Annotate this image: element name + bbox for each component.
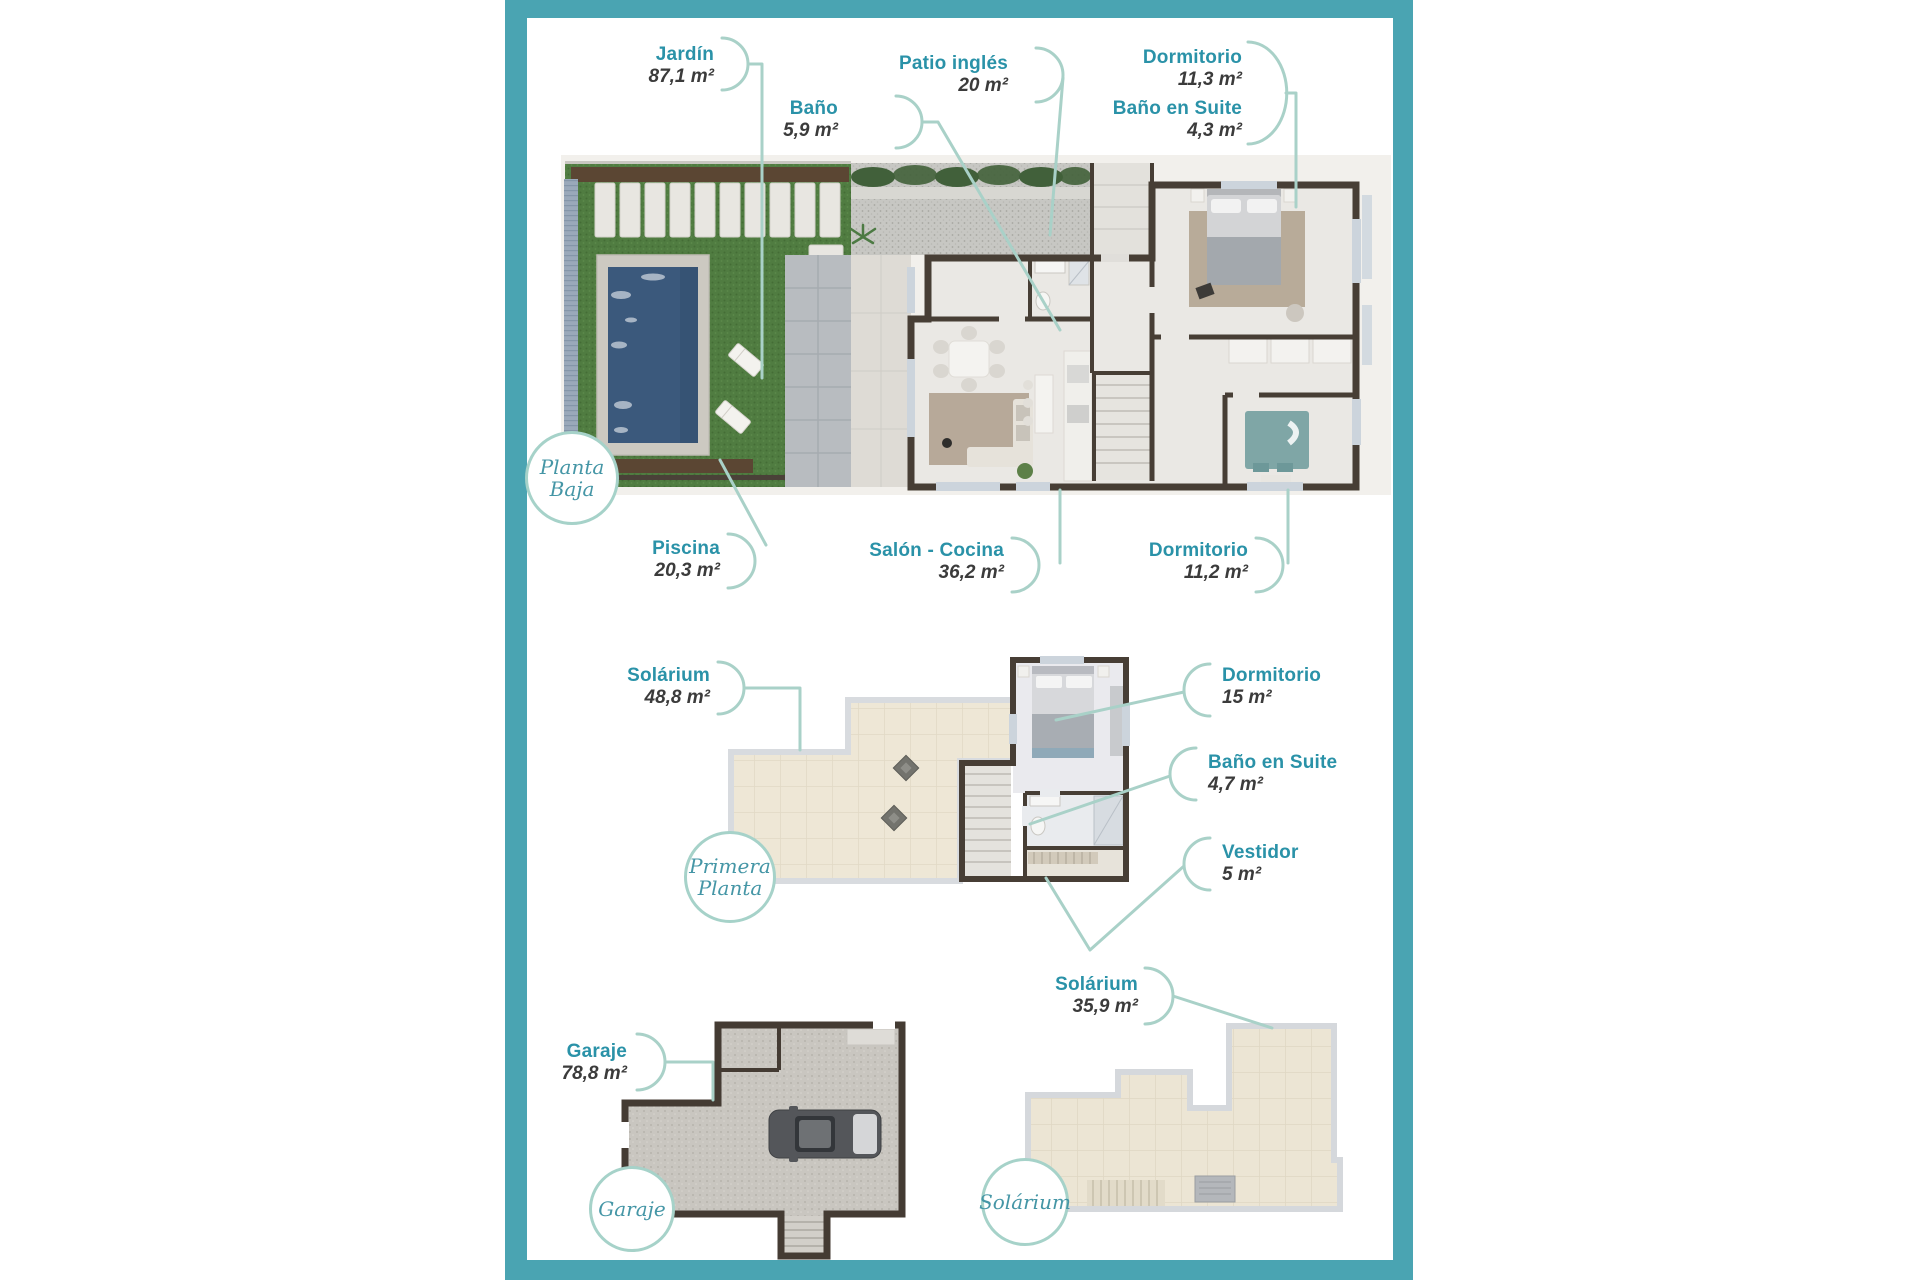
paver-path [785, 255, 851, 487]
plant [1017, 463, 1033, 479]
label-piscina: Piscina 20,3 m² [608, 538, 720, 582]
label-dormitorio-1f: Dormitorio 15 m² [1222, 665, 1342, 709]
label-bano-suite-1f: Baño en Suite 4,7 m² [1208, 752, 1358, 796]
badge-line: Primera [689, 855, 771, 877]
wardrobes [1229, 339, 1351, 363]
roof-solarium-plan [1025, 1020, 1343, 1217]
stairs-roof [1087, 1180, 1165, 1206]
room-area: 87,1 m² [598, 66, 714, 88]
room-name: Garaje [513, 1041, 627, 1063]
room-area: 36,2 m² [856, 562, 1004, 584]
label-dormitorio-2: Dormitorio 11,2 m² [1118, 540, 1248, 584]
mulch-strip-top [571, 167, 849, 182]
ground-floor-plan [561, 155, 1391, 495]
label-solarium-roof: Solárium 35,9 m² [1024, 974, 1138, 1018]
room-name: Dormitorio [1222, 665, 1342, 687]
room-name: Piscina [608, 538, 720, 560]
tv-speaker [942, 438, 952, 448]
staircase-ground [1094, 373, 1150, 480]
wardrobe [1110, 686, 1124, 756]
badge-line: Planta [540, 456, 605, 478]
rooftop-unit [1195, 1176, 1235, 1202]
patio-ingles-court [851, 163, 1092, 255]
room-name: Dormitorio [1112, 47, 1242, 69]
label-bano: Baño 5,9 m² [738, 98, 838, 142]
bathroom-first [1025, 793, 1126, 848]
room-area: 4,3 m² [1100, 120, 1242, 142]
badge-primera-planta: Primera Planta [684, 831, 776, 923]
bedroom-first [1013, 660, 1126, 793]
pool [597, 255, 709, 455]
room-area: 15 m² [1222, 687, 1342, 709]
label-dormitorio-principal: Dormitorio 11,3 m² [1112, 47, 1242, 91]
room-area: 11,2 m² [1118, 562, 1248, 584]
storage-niche [847, 1029, 895, 1045]
car [769, 1106, 881, 1162]
pouf [1286, 304, 1304, 322]
room-name: Salón - Cocina [856, 540, 1004, 562]
badge-line: Planta [698, 877, 763, 899]
vestidor-room [1025, 848, 1126, 879]
badge-line: Solárium [979, 1191, 1071, 1213]
room-area: 35,9 m² [1024, 996, 1138, 1018]
room-name: Baño [738, 98, 838, 120]
badge-solarium: Solárium [981, 1158, 1069, 1246]
room-name: Jardín [598, 44, 714, 66]
badge-garaje: Garaje [589, 1166, 675, 1252]
label-salon-cocina: Salón - Cocina 36,2 m² [856, 540, 1004, 584]
label-jardin: Jardín 87,1 m² [598, 44, 714, 88]
label-patio-ingles: Patio inglés 20 m² [878, 53, 1008, 97]
badge-planta-baja: Planta Baja [525, 431, 619, 525]
room-area: 20,3 m² [608, 560, 720, 582]
flyer-page: Jardín 87,1 m² Baño 5,9 m² Patio inglés … [0, 0, 1920, 1280]
room-name: Vestidor [1222, 842, 1332, 864]
entry-walkway [1092, 163, 1152, 255]
hedge [564, 179, 578, 463]
room-name: Dormitorio [1118, 540, 1248, 562]
room-name: Solárium [1024, 974, 1138, 996]
label-bano-en-suite: Baño en Suite 4,3 m² [1100, 98, 1242, 142]
badge-line: Baja [550, 478, 595, 500]
label-solarium-1f: Solárium 48,8 m² [596, 665, 710, 709]
first-floor-plan [728, 656, 1132, 888]
room-name: Baño en Suite [1208, 752, 1358, 774]
island [1035, 375, 1053, 433]
room-area: 48,8 m² [596, 687, 710, 709]
porch [851, 255, 911, 487]
label-vestidor: Vestidor 5 m² [1222, 842, 1332, 886]
label-garaje: Garaje 78,8 m² [513, 1041, 627, 1085]
room-area: 78,8 m² [513, 1063, 627, 1085]
room-area: 5 m² [1222, 864, 1332, 886]
room-name: Baño en Suite [1100, 98, 1242, 120]
room-area: 4,7 m² [1208, 774, 1358, 796]
stairs-garage [783, 1216, 825, 1254]
room-area: 5,9 m² [738, 120, 838, 142]
room-name: Patio inglés [878, 53, 1008, 75]
room-area: 11,3 m² [1112, 69, 1242, 91]
room-name: Solárium [596, 665, 710, 687]
badge-line: Garaje [598, 1198, 665, 1220]
solarium-deck [1028, 1026, 1340, 1209]
staircase-first [962, 763, 1011, 879]
room-area: 20 m² [878, 75, 1008, 97]
